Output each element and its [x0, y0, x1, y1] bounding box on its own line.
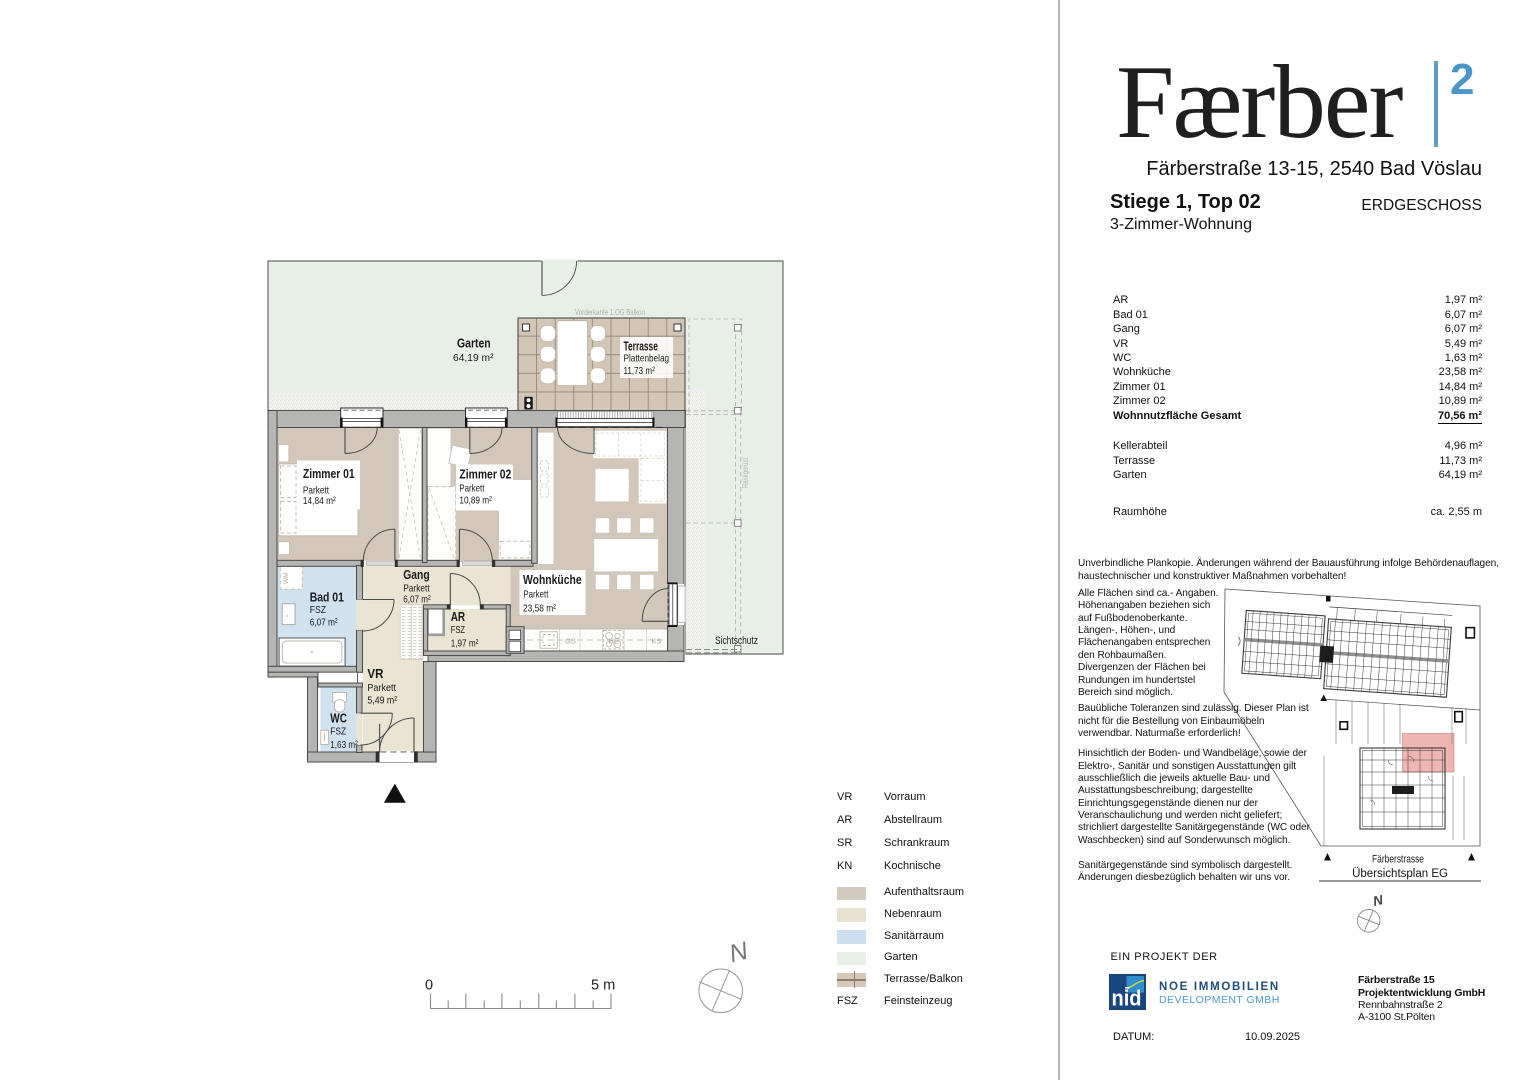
svg-text:Gang: Gang — [403, 567, 430, 582]
svg-text:64,19 m²: 64,19 m² — [453, 352, 494, 364]
svg-text:Parkett: Parkett — [523, 589, 548, 601]
svg-text:Bad 01: Bad 01 — [310, 589, 344, 604]
svg-text:Parkett: Parkett — [459, 483, 484, 495]
svg-text:11,73 m²: 11,73 m² — [624, 365, 656, 377]
svg-text:WC: WC — [330, 711, 347, 726]
svg-text:N: N — [1372, 892, 1385, 909]
svg-text:5 m: 5 m — [591, 978, 615, 994]
svg-text:Parkett: Parkett — [367, 682, 396, 694]
svg-text:Plattenbelag: Plattenbelag — [624, 353, 670, 365]
svg-text:FSZ: FSZ — [310, 604, 327, 616]
svg-text:Färberstrasse: Färberstrasse — [1372, 854, 1424, 866]
svg-text:10,89 m²: 10,89 m² — [459, 495, 492, 507]
svg-text:Zimmer 02: Zimmer 02 — [459, 466, 511, 481]
svg-text:AR: AR — [451, 609, 466, 624]
svg-text:KS: KS — [652, 637, 662, 646]
svg-text:HE: HE — [609, 637, 619, 646]
svg-text:VR: VR — [367, 666, 384, 681]
svg-text:Rankgerüst: Rankgerüst — [741, 457, 750, 488]
svg-text:14,84 m²: 14,84 m² — [303, 495, 336, 507]
svg-text:Garten: Garten — [457, 337, 491, 351]
svg-text:Sichtschutz: Sichtschutz — [715, 635, 758, 647]
svg-text:WM: WM — [283, 572, 290, 584]
svg-text:nid: nid — [1112, 986, 1142, 1011]
svg-text:Wohnküche: Wohnküche — [523, 572, 582, 587]
svg-text:N: N — [726, 936, 751, 968]
svg-text:FSZ: FSZ — [330, 726, 346, 738]
svg-text:FSZ: FSZ — [451, 624, 466, 636]
svg-text:Vorderkante 1.OG Balkon: Vorderkante 1.OG Balkon — [575, 308, 645, 317]
svg-text:23,58 m²: 23,58 m² — [523, 603, 556, 615]
svg-text:6,07 m²: 6,07 m² — [403, 594, 431, 606]
svg-text:0: 0 — [425, 978, 433, 994]
svg-text:Zimmer 01: Zimmer 01 — [303, 466, 355, 481]
svg-text:Parkett: Parkett — [403, 583, 430, 595]
svg-text:1,63 m²: 1,63 m² — [330, 739, 358, 751]
svg-text:6,07 m²: 6,07 m² — [310, 616, 338, 628]
svg-text:1,97 m²: 1,97 m² — [451, 637, 479, 649]
svg-text:5,49 m²: 5,49 m² — [367, 695, 397, 707]
svg-text:GS: GS — [565, 637, 576, 646]
